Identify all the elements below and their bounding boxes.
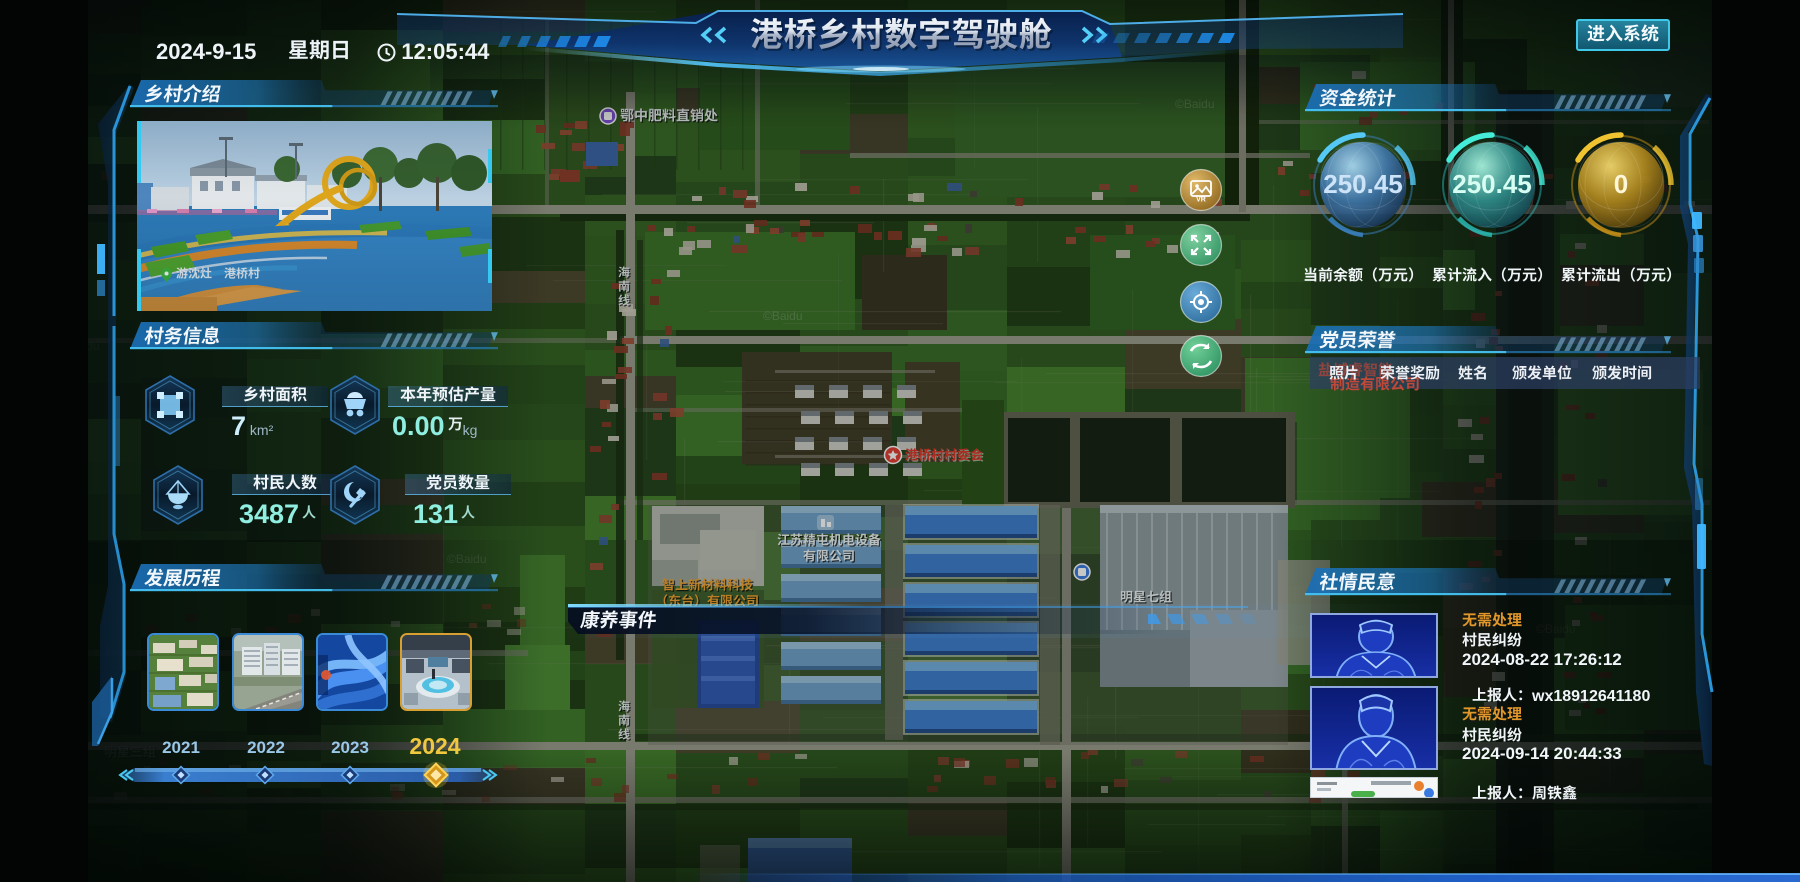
svg-text:VR: VR — [1196, 197, 1206, 204]
